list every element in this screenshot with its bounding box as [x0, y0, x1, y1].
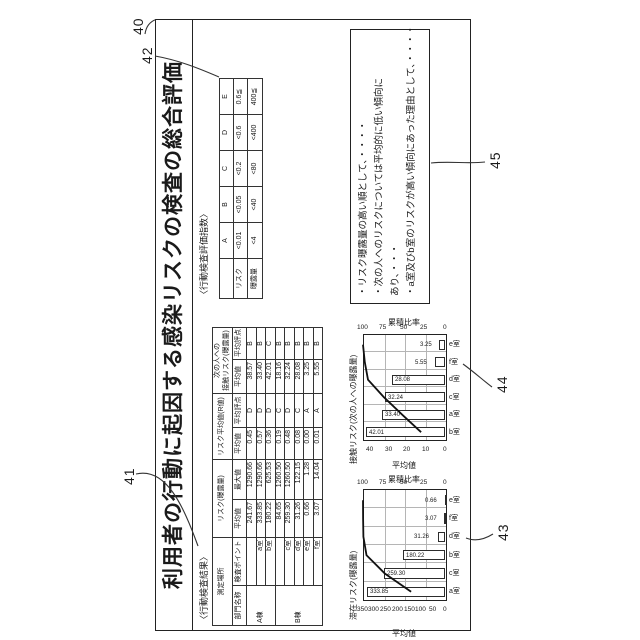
index-table-caption: 〈行動検査評価指数〉 — [197, 209, 210, 299]
y-tick-label: 0 — [443, 605, 447, 614]
table-cell: 0.45 — [247, 427, 257, 459]
col-max: 最大値 — [233, 459, 247, 499]
table-cell: 625.53 — [266, 459, 276, 499]
y-tick-label: 150 — [404, 605, 415, 614]
figure-stage: 利用者の行動に起因する感染リスクの検査の総合評価 40 42 41 43 44 … — [0, 0, 640, 640]
findings-line: ・次の人へのリスクについては平均的に低い傾向に — [372, 37, 388, 296]
table-cell: 18.16 — [275, 359, 285, 393]
findings-line: あり、・・・ — [388, 37, 404, 296]
table-cell: D — [285, 393, 295, 427]
col-point: 検査ポイント — [233, 538, 247, 586]
category-label: d室 — [449, 375, 460, 384]
table-cell: 1290.66 — [256, 459, 266, 499]
index-blank-cell — [220, 259, 234, 299]
table-row: A棟241.671290.660.45D38.57B — [247, 327, 257, 625]
table-cell: A — [304, 393, 314, 427]
contact-chart-title: 接触リスク(次の人への曝露量) — [348, 355, 359, 464]
y-tick-label: 0 — [443, 445, 447, 454]
result-table: 測定場所 リスク(曝露量) リスク平均値(R値) 次の人への 接触リスク(曝露量… — [212, 327, 323, 626]
y-tick-label: 300 — [368, 605, 379, 614]
table-cell: 0.19 — [275, 427, 285, 459]
category-label: a室 — [449, 410, 460, 419]
leader-40 — [145, 20, 156, 35]
table-cell: B — [275, 327, 285, 359]
table-cell: 1.28 — [304, 459, 314, 499]
y2-tick-label: 75 — [379, 478, 386, 487]
colgroup-risk-average: リスク平均値(R値) — [213, 393, 233, 459]
table-cell: 1260.50 — [285, 459, 295, 499]
table-cell: D — [266, 393, 276, 427]
y-axis-title: 平均値 — [392, 629, 416, 638]
table-cell: f室 — [313, 538, 323, 586]
table-cell: B — [294, 327, 304, 359]
col-r-grade: 平均評点 — [233, 393, 247, 427]
table-cell: e室 — [304, 538, 314, 586]
table-cell: A — [313, 393, 323, 427]
category-label: f室 — [449, 514, 458, 523]
index-risk-row: リスク <0.01 <0.05 <0.2 <0.6 0.6≦ — [234, 79, 248, 299]
table-row: d室31.26122.150.08C28.08B — [294, 327, 304, 625]
table-row: b室180.22625.530.36D42.01C — [266, 327, 276, 625]
grade-e: E — [220, 79, 234, 115]
y2-tick-label: 0 — [443, 478, 447, 487]
table-cell: C — [275, 393, 285, 427]
bar-e室 — [445, 495, 447, 506]
building-cell: A棟 — [247, 586, 276, 626]
table-row: a室333.851290.660.57D33.40B — [256, 327, 266, 625]
table-cell: 0.01 — [313, 427, 323, 459]
y-tick-label: 40 — [366, 445, 373, 454]
colgroup-contact-risk: 次の人への 接触リスク(曝露量) — [213, 327, 233, 393]
colgroup-location: 測定場所 — [213, 538, 233, 626]
leader-43 — [466, 534, 493, 540]
table-cell: a室 — [256, 538, 266, 586]
table-cell: D — [256, 393, 266, 427]
table-cell: 38.57 — [247, 359, 257, 393]
y2-tick-label: 25 — [420, 478, 427, 487]
leader-42 — [155, 56, 219, 77]
table-cell: 42.01 — [266, 359, 276, 393]
findings-line: ・a室及びb室のリスクが高い傾向にあった理由として、・・・・ — [404, 37, 420, 296]
table-cell: B — [313, 327, 323, 359]
table-row: e室0.661.280.00A3.25B — [304, 327, 314, 625]
table-cell: C — [266, 327, 276, 359]
y2-tick-label: 100 — [357, 478, 368, 487]
table-cell: b室 — [266, 538, 276, 586]
y2-tick-label: 0 — [443, 323, 447, 332]
col-c-grade: 平均評点 — [233, 327, 247, 359]
leader-44 — [463, 364, 492, 387]
table-cell — [275, 538, 285, 586]
y-tick-label: 10 — [422, 445, 429, 454]
table-cell: 333.85 — [256, 500, 266, 538]
table-row: B棟84.651260.500.19C18.16B — [275, 327, 285, 625]
findings-line: ・リスク曝露量の高い順として、・・・・ — [356, 37, 372, 296]
col-r-avg: 平均値 — [233, 427, 247, 459]
patent-figure-page: 利用者の行動に起因する感染リスクの検査の総合評価 40 42 41 43 44 … — [0, 0, 640, 640]
building-cell: B棟 — [275, 586, 323, 626]
grade-b: B — [220, 187, 234, 223]
category-label: c室 — [449, 393, 460, 402]
table-cell: 1260.50 — [275, 459, 285, 499]
table-cell: B — [247, 327, 257, 359]
category-label: c室 — [449, 569, 460, 578]
category-label: b室 — [449, 428, 460, 437]
category-label: e室 — [449, 496, 460, 505]
table-cell: 0.57 — [256, 427, 266, 459]
findings-box: ・リスク曝露量の高い順として、・・・・ ・次の人へのリスクについては平均的に低い… — [350, 29, 430, 304]
table-row: f室3.0714.040.01A5.55B — [313, 327, 323, 625]
table-cell: 28.08 — [294, 359, 304, 393]
y2-axis-title: 累積比率 — [388, 318, 420, 327]
table-cell: 259.30 — [285, 500, 295, 538]
table-cell: 0.48 — [285, 427, 295, 459]
table-row: c室259.301260.500.48D32.24B — [285, 327, 295, 625]
stay-cumulative-line — [363, 491, 445, 601]
col-building: 部門名称 — [233, 586, 247, 626]
y2-tick-label: 25 — [420, 323, 427, 332]
grade-c: C — [220, 151, 234, 187]
grade-a: A — [220, 223, 234, 259]
table-cell: 3.25 — [304, 359, 314, 393]
y-tick-label: 50 — [429, 605, 436, 614]
y-tick-label: 200 — [392, 605, 403, 614]
table-cell: d室 — [294, 538, 304, 586]
table-cell: 1290.66 — [247, 459, 257, 499]
table-cell: 31.26 — [294, 500, 304, 538]
y2-axis-title: 累積比率 — [388, 475, 420, 484]
category-label: e室 — [449, 340, 460, 349]
index-exposure-row: 曝露量 <4 <40 <80 <400 400≦ — [248, 79, 263, 299]
table-cell: 180.22 — [266, 500, 276, 538]
y2-tick-label: 100 — [357, 323, 368, 332]
table-cell: 0.00 — [304, 427, 314, 459]
category-label: a室 — [449, 587, 460, 596]
result-table-caption: 〈行動検査結果〉 — [197, 552, 210, 624]
y-tick-label: 100 — [415, 605, 426, 614]
table-cell: 241.67 — [247, 500, 257, 538]
table-cell: 0.36 — [266, 427, 276, 459]
y-axis-title: 平均値 — [392, 461, 416, 470]
y-tick-label: 30 — [385, 445, 392, 454]
table-cell: 122.15 — [294, 459, 304, 499]
colgroup-risk-exposure: リスク(曝露量) — [213, 459, 233, 537]
category-label: d室 — [449, 532, 460, 541]
leader-45 — [431, 162, 485, 163]
table-cell: C — [294, 393, 304, 427]
y-tick-label: 20 — [403, 445, 410, 454]
table-cell: 84.65 — [275, 500, 285, 538]
table-cell: 14.04 — [313, 459, 323, 499]
y2-tick-label: 75 — [379, 323, 386, 332]
table-cell: B — [256, 327, 266, 359]
col-avg: 平均値 — [233, 500, 247, 538]
contact-cumulative-line — [363, 336, 445, 441]
table-cell: 3.07 — [313, 500, 323, 538]
leader-41 — [136, 473, 198, 546]
table-cell: 0.66 — [304, 500, 314, 538]
category-label: f室 — [449, 358, 458, 367]
col-c-avg: 平均値 — [233, 359, 247, 393]
y-tick-label: 250 — [380, 605, 391, 614]
table-cell: 5.55 — [313, 359, 323, 393]
table-cell — [247, 538, 257, 586]
table-cell: c室 — [285, 538, 295, 586]
y-tick-label: 350 — [357, 605, 368, 614]
grade-d: D — [220, 115, 234, 151]
table-cell: B — [285, 327, 295, 359]
table-cell: 32.24 — [285, 359, 295, 393]
table-cell: 33.40 — [256, 359, 266, 393]
index-table: A B C D E リスク <0.01 <0.05 <0.2 <0.6 0.6≦… — [219, 78, 263, 299]
table-cell: 0.08 — [294, 427, 304, 459]
table-cell: B — [304, 327, 314, 359]
table-cell: D — [247, 393, 257, 427]
category-label: b室 — [449, 551, 460, 560]
